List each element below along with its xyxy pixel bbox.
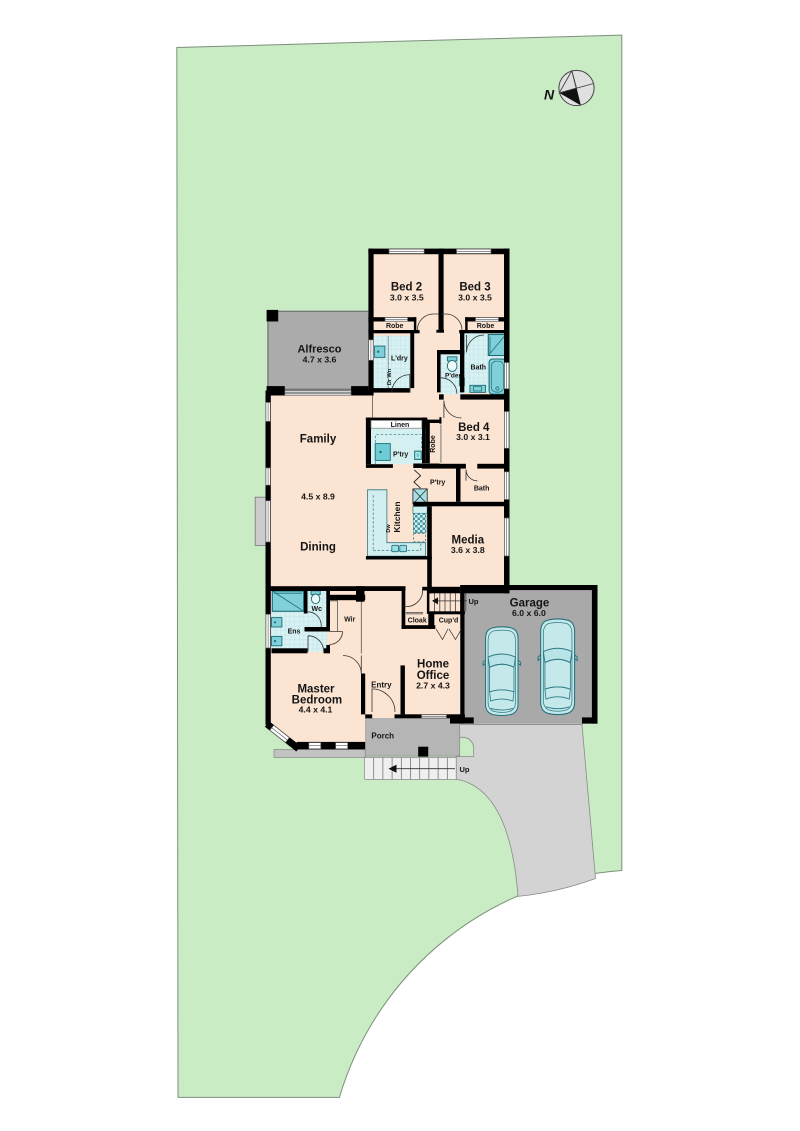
svg-text:Linen: Linen: [391, 422, 410, 429]
svg-text:Robe: Robe: [386, 323, 404, 330]
svg-text:3.0 x 3.1: 3.0 x 3.1: [456, 432, 490, 442]
svg-text:Wir: Wir: [344, 616, 355, 623]
svg-text:Porch: Porch: [371, 731, 394, 740]
svg-text:Ens: Ens: [288, 628, 301, 635]
svg-text:4.7 x 3.6: 4.7 x 3.6: [303, 355, 337, 365]
svg-text:N: N: [544, 87, 555, 103]
svg-text:Dw: Dw: [386, 524, 392, 533]
svg-text:Cloak: Cloak: [408, 618, 427, 625]
svg-text:P'try: P'try: [393, 451, 408, 458]
svg-text:Bath: Bath: [471, 364, 487, 371]
svg-text:3.0 x 3.5: 3.0 x 3.5: [458, 293, 492, 303]
svg-text:L'dry: L'dry: [391, 355, 408, 362]
svg-text:Robe: Robe: [430, 435, 437, 453]
svg-text:P'try: P'try: [430, 479, 445, 486]
svg-text:3.6 x 3.8: 3.6 x 3.8: [451, 545, 485, 555]
svg-text:Up: Up: [460, 765, 470, 774]
svg-text:Dining: Dining: [300, 542, 336, 554]
svg-text:Kitchen: Kitchen: [392, 501, 402, 532]
svg-text:Bath: Bath: [474, 485, 490, 492]
svg-text:Up: Up: [469, 597, 479, 606]
svg-text:2.7 x 4.3: 2.7 x 4.3: [416, 681, 450, 691]
svg-text:4.4 x 4.1: 4.4 x 4.1: [299, 705, 333, 715]
svg-text:4.5 x 8.9: 4.5 x 8.9: [301, 492, 335, 502]
svg-text:Family: Family: [300, 434, 337, 446]
svg-text:Wc: Wc: [312, 606, 323, 613]
svg-text:Entry: Entry: [371, 680, 392, 689]
svg-text:Robe: Robe: [477, 323, 495, 330]
svg-text:Home: Home: [417, 658, 449, 670]
svg-text:Cup'd: Cup'd: [439, 618, 459, 625]
svg-text:6.0 x 6.0: 6.0 x 6.0: [512, 608, 546, 618]
svg-text:3.0 x 3.5: 3.0 x 3.5: [390, 293, 424, 303]
svg-text:P'der: P'der: [445, 373, 461, 380]
svg-text:Dr Wn: Dr Wn: [387, 368, 393, 385]
